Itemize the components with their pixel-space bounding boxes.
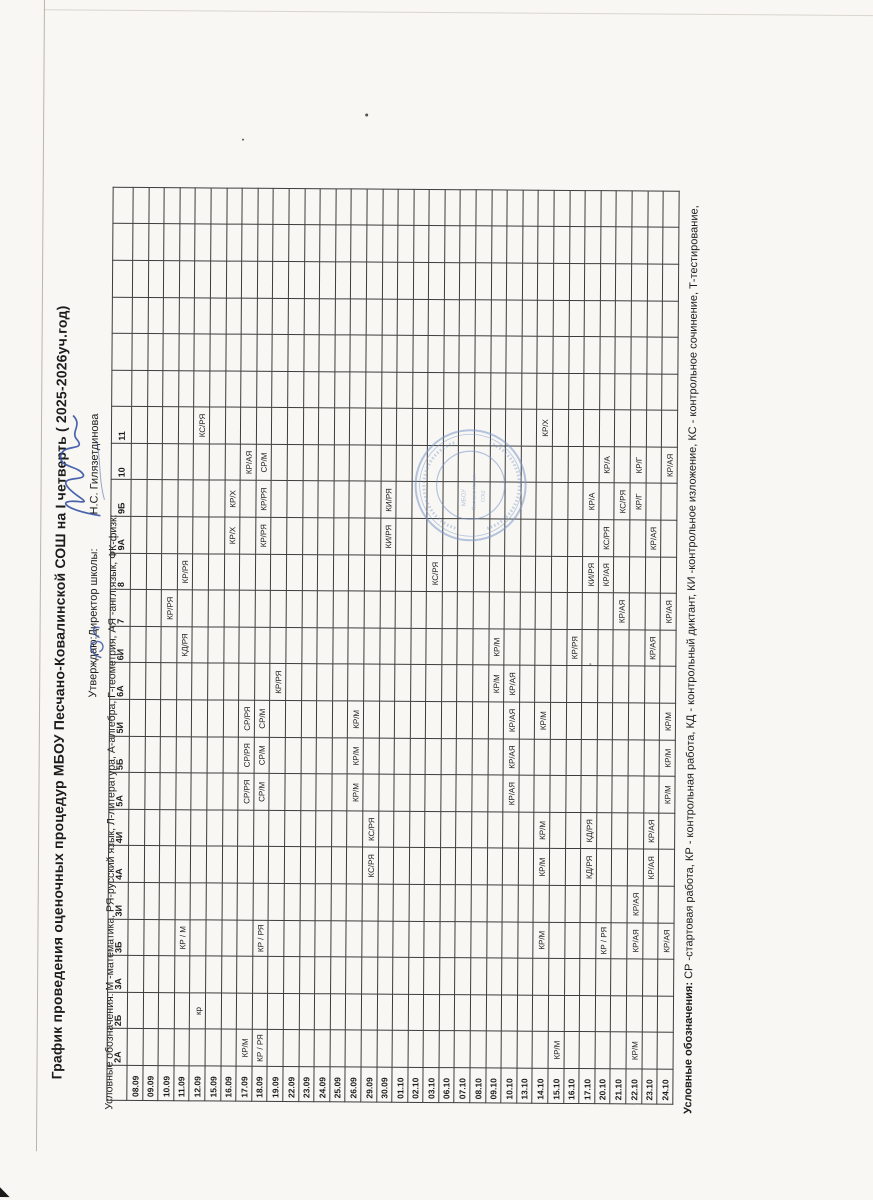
- schedule-cell: [395, 592, 411, 629]
- empty-cell: [521, 373, 537, 410]
- schedule-cell: [565, 812, 581, 849]
- schedule-cell: [489, 519, 505, 556]
- empty-cell: [553, 263, 569, 300]
- empty-cell: [226, 188, 242, 225]
- schedule-cell: [644, 666, 660, 703]
- schedule-cell: [423, 1031, 439, 1068]
- schedule-cell: [486, 1031, 502, 1068]
- schedule-cell: [302, 591, 318, 628]
- schedule-cell: [131, 407, 147, 444]
- empty-cell: [413, 335, 429, 372]
- schedule-cell: [551, 556, 567, 593]
- class-header-6А: 6А: [110, 663, 130, 700]
- schedule-cell: [255, 554, 271, 591]
- empty-cell: [397, 262, 413, 299]
- schedule-cell: [330, 1030, 346, 1067]
- schedule-cell: [642, 996, 658, 1033]
- schedule-cell: [566, 666, 582, 703]
- schedule-cell: [661, 520, 677, 557]
- schedule-cell: [362, 921, 378, 958]
- schedule-cell: [505, 483, 521, 520]
- dust-speck: [242, 139, 244, 141]
- schedule-cell: [147, 443, 163, 480]
- schedule-cell: [595, 995, 611, 1032]
- empty-cell: [273, 261, 289, 298]
- schedule-cell: [615, 447, 631, 484]
- empty-cell: [179, 261, 195, 298]
- scan-corner-mark: [0, 1183, 10, 1197]
- empty-cell: [335, 298, 351, 335]
- schedule-cell: [315, 847, 331, 884]
- empty-cell: [180, 187, 196, 224]
- empty-cell: [569, 263, 585, 300]
- schedule-cell: [502, 958, 518, 995]
- empty-cell: [179, 334, 195, 371]
- empty-cell: [273, 225, 289, 262]
- schedule-cell: [410, 665, 426, 702]
- empty-cell: [242, 188, 258, 225]
- schedule-cell: [471, 921, 487, 958]
- schedule-cell: [427, 482, 443, 519]
- schedule-cell: [316, 701, 332, 738]
- schedule-cell: [521, 483, 537, 520]
- schedule-cell: [301, 627, 317, 664]
- date-label: 24.10: [657, 1069, 673, 1104]
- schedule-cell: [424, 994, 440, 1031]
- schedule-cell: [580, 959, 596, 996]
- schedule-cell: [190, 919, 206, 956]
- empty-cell: [491, 263, 507, 300]
- schedule-cell: [334, 445, 350, 482]
- schedule-cell: [206, 956, 222, 993]
- schedule-cell: [443, 482, 459, 519]
- schedule-cell: [520, 592, 536, 629]
- schedule-cell: [426, 592, 442, 629]
- empty-cell: [398, 226, 414, 263]
- schedule-cell: [378, 774, 394, 811]
- schedule-cell: [565, 776, 581, 813]
- empty-cell: [289, 225, 305, 262]
- schedule-cell: [252, 993, 268, 1030]
- empty-cell: [413, 262, 429, 299]
- schedule-cell: [223, 700, 239, 737]
- schedule-cell: [579, 1032, 595, 1069]
- schedule-cell: [662, 410, 678, 447]
- empty-cell: [647, 264, 663, 301]
- schedule-cell: [144, 846, 160, 883]
- empty-cell: [366, 372, 382, 409]
- empty-cell: [506, 300, 522, 337]
- empty-cell: [412, 372, 428, 409]
- date-label: 12.09: [189, 1066, 205, 1101]
- empty-cell: [195, 224, 211, 261]
- schedule-cell: [566, 703, 582, 740]
- schedule-cell: [580, 995, 596, 1032]
- schedule-cell: [286, 627, 302, 664]
- schedule-cell: [393, 848, 409, 885]
- schedule-cell: [178, 480, 194, 517]
- schedule-cell: [597, 776, 613, 813]
- schedule-cell: [567, 483, 583, 520]
- schedule-cell: [456, 848, 472, 885]
- schedule-cell: [410, 775, 426, 812]
- schedule-cell: КР/М: [348, 701, 364, 738]
- schedule-cell: [456, 885, 472, 922]
- schedule-cell: КР/Х: [537, 410, 553, 447]
- schedule-cell: СР/М: [254, 774, 270, 811]
- empty-cell: [351, 262, 367, 299]
- schedule-cell: [486, 995, 502, 1032]
- schedule-cell: [287, 481, 303, 518]
- empty-cell: [225, 371, 241, 408]
- schedule-cell: [442, 519, 458, 556]
- schedule-cell: [285, 737, 301, 774]
- schedule-cell: КР/РЯ: [270, 664, 286, 701]
- schedule-cell: [303, 445, 319, 482]
- schedule-cell: [128, 919, 144, 956]
- schedule-cell: [488, 739, 504, 776]
- empty-cell: [366, 262, 382, 299]
- schedule-cell: [377, 957, 393, 994]
- schedule-cell: КИ/РЯ: [380, 482, 396, 519]
- empty-cell: [599, 373, 615, 410]
- schedule-cell: [440, 848, 456, 885]
- empty-cell: [210, 334, 226, 371]
- empty-cell: [226, 298, 242, 335]
- schedule-cell: [394, 774, 410, 811]
- schedule-cell: КР/М: [489, 629, 505, 666]
- schedule-cell: [162, 444, 178, 481]
- class-header-5И: 5И: [109, 699, 129, 736]
- schedule-cell: [424, 921, 440, 958]
- schedule-cell: [221, 920, 237, 957]
- class-header-4И: 4И: [109, 809, 129, 846]
- schedule-cell: [333, 555, 349, 592]
- empty-cell: [584, 373, 600, 410]
- schedule-cell: [536, 593, 552, 630]
- schedule-cell: [333, 591, 349, 628]
- empty-cell: [429, 226, 445, 263]
- schedule-cell: [394, 811, 410, 848]
- schedule-cell: [318, 518, 334, 555]
- schedule-cell: [361, 994, 377, 1031]
- empty-cell: [413, 299, 429, 336]
- date-label: 26.09: [345, 1067, 361, 1102]
- schedule-cell: [581, 776, 597, 813]
- schedule-cell: [660, 667, 676, 704]
- empty-cell: [616, 300, 632, 337]
- schedule-cell: КР/М: [659, 776, 675, 813]
- schedule-cell: [566, 739, 582, 776]
- date-label: 09.09: [142, 1065, 158, 1100]
- empty-cell: [149, 187, 165, 224]
- schedule-cell: [505, 519, 521, 556]
- schedule-cell: [396, 445, 412, 482]
- schedule-cell: [409, 848, 425, 885]
- schedule-cell: [582, 593, 598, 630]
- schedule-cell: [143, 1029, 159, 1066]
- empty-cell: [492, 190, 508, 227]
- schedule-cell: [268, 993, 284, 1030]
- schedule-cell: [613, 630, 629, 667]
- schedule-cell: [381, 445, 397, 482]
- empty-cell: [398, 189, 414, 226]
- schedule-cell: [455, 994, 471, 1031]
- schedule-cell: [487, 812, 503, 849]
- schedule-cell: КР/М: [347, 738, 363, 775]
- empty-cell: [538, 227, 554, 264]
- empty-cell: [257, 334, 273, 371]
- date-label: 15.10: [548, 1068, 564, 1103]
- schedule-cell: КИ/РЯ: [583, 556, 599, 593]
- schedule-cell: [349, 445, 365, 482]
- schedule-cell: [565, 849, 581, 886]
- empty-cell: [366, 335, 382, 372]
- schedule-cell: [520, 519, 536, 556]
- schedule-cell: КР/РЯ: [566, 629, 582, 666]
- date-label: 10.10: [501, 1068, 517, 1103]
- schedule-cell: [146, 553, 162, 590]
- schedule-cell: [159, 883, 175, 920]
- schedule-cell: [346, 884, 362, 921]
- schedule-cell: [627, 849, 643, 886]
- schedule-cell: [502, 995, 518, 1032]
- empty-cell: [273, 188, 289, 225]
- schedule-cell: [457, 702, 473, 739]
- empty-cell: [615, 337, 631, 374]
- empty-cell: [288, 371, 304, 408]
- schedule-cell: [239, 627, 255, 664]
- schedule-cell: [487, 848, 503, 885]
- schedule-cell: [253, 847, 269, 884]
- schedule-cell: [224, 590, 240, 627]
- schedule-cell: [299, 957, 315, 994]
- schedule-cell: [502, 922, 518, 959]
- empty-cell: [600, 264, 616, 301]
- class-header-8: 8: [110, 553, 130, 590]
- schedule-cell: [175, 846, 191, 883]
- schedule-cell: КР/АЯ: [504, 665, 520, 702]
- schedule-cell: [487, 775, 503, 812]
- schedule-cell: [299, 993, 315, 1030]
- schedule-cell: [347, 847, 363, 884]
- schedule-cell: [505, 446, 521, 483]
- schedule-cell: [503, 848, 519, 885]
- schedule-cell: КР/АЯ: [503, 739, 519, 776]
- schedule-cell: [661, 484, 677, 521]
- schedule-cell: [517, 995, 533, 1032]
- schedule-cell: [613, 703, 629, 740]
- schedule-cell: [377, 921, 393, 958]
- empty-cell: [570, 190, 586, 227]
- schedule-cell: [501, 1031, 517, 1068]
- schedule-cell: [533, 995, 549, 1032]
- schedule-cell: [658, 959, 674, 996]
- schedule-cell: [473, 629, 489, 666]
- schedule-cell: [611, 922, 627, 959]
- empty-cell: [646, 374, 662, 411]
- schedule-cell: [330, 994, 346, 1031]
- schedule-cell: [439, 958, 455, 995]
- schedule-cell: [396, 518, 412, 555]
- schedule-cell: [411, 555, 427, 592]
- schedule-cell: [506, 409, 522, 446]
- empty-cell: [538, 263, 554, 300]
- schedule-cell: [285, 774, 301, 811]
- date-label: 29.09: [361, 1067, 377, 1102]
- date-label: 20.10: [595, 1069, 611, 1104]
- schedule-cell: [364, 591, 380, 628]
- schedule-cell: [252, 956, 268, 993]
- empty-cell: [304, 262, 320, 299]
- schedule-cell: [222, 883, 238, 920]
- empty-cell: [210, 261, 226, 298]
- approval-prefix: Утверждаю:Директор школы:: [87, 548, 100, 697]
- date-label: 16.10: [563, 1068, 579, 1103]
- schedule-cell: [458, 519, 474, 556]
- schedule-cell: [209, 407, 225, 444]
- empty-cell: [226, 224, 242, 261]
- empty-cell: [147, 370, 163, 407]
- scanned-schedule-page: График проведения оценочных процедур МБО…: [0, 0, 873, 1200]
- empty-cell: [272, 298, 288, 335]
- schedule-cell: [659, 813, 675, 850]
- schedule-cell: [269, 810, 285, 847]
- schedule-cell: [646, 447, 662, 484]
- empty-cell: [288, 261, 304, 298]
- empty-cell: [490, 373, 506, 410]
- empty-cell: [351, 225, 367, 262]
- schedule-cell: КИ/РЯ: [380, 518, 396, 555]
- empty-cell: [615, 373, 631, 410]
- schedule-cell: [486, 922, 502, 959]
- schedule-cell: [332, 701, 348, 738]
- empty-cell: [382, 262, 398, 299]
- schedule-cell: КР/АЯ: [504, 702, 520, 739]
- date-label: 11.09: [174, 1066, 190, 1101]
- schedule-cell: [487, 885, 503, 922]
- empty-cell: [647, 227, 663, 264]
- schedule-cell: [472, 812, 488, 849]
- schedule-cell: [271, 444, 287, 481]
- schedule-cell: [440, 921, 456, 958]
- schedule-cell: [504, 629, 520, 666]
- schedule-cell: [174, 956, 190, 993]
- empty-cell: [553, 300, 569, 337]
- empty-cell: [382, 299, 398, 336]
- schedule-cell: [505, 556, 521, 593]
- empty-cell: [523, 190, 539, 227]
- schedule-cell: [502, 885, 518, 922]
- schedule-cell: [175, 883, 191, 920]
- empty-cell: [631, 374, 647, 411]
- schedule-cell: КР / РЯ: [252, 1030, 268, 1067]
- empty-cell: [257, 225, 273, 262]
- schedule-cell: [490, 446, 506, 483]
- schedule-cell: [534, 775, 550, 812]
- schedule-cell: [428, 409, 444, 446]
- empty-cell: [663, 191, 679, 228]
- schedule-cell: [361, 1030, 377, 1067]
- schedule-cell: [582, 703, 598, 740]
- empty-cell: [164, 224, 180, 261]
- empty-cell: [304, 298, 320, 335]
- date-label: 02.10: [407, 1067, 423, 1102]
- schedule-cell: [583, 446, 599, 483]
- class-header-2Б: 2Б: [107, 992, 127, 1029]
- schedule-cell: [456, 812, 472, 849]
- schedule-cell: [551, 629, 567, 666]
- schedule-cell: [193, 480, 209, 517]
- schedule-cell: [599, 410, 615, 447]
- empty-cell: [554, 227, 570, 264]
- empty-cell: [600, 227, 616, 264]
- schedule-cell: [473, 665, 489, 702]
- empty-cell: [647, 301, 663, 338]
- schedule-cell: [286, 591, 302, 628]
- empty-cell: [194, 371, 210, 408]
- empty-cell: [459, 372, 475, 409]
- schedule-cell: [441, 738, 457, 775]
- empty-cell: [568, 373, 584, 410]
- schedule-cell: [443, 445, 459, 482]
- schedule-cell: [536, 483, 552, 520]
- schedule-cell: [193, 517, 209, 554]
- schedule-cell: [629, 557, 645, 594]
- schedule-cell: [225, 407, 241, 444]
- schedule-cell: [410, 738, 426, 775]
- schedule-cell: [424, 958, 440, 995]
- schedule-cell: [549, 849, 565, 886]
- empty-cell: [662, 374, 678, 411]
- schedule-cell: [455, 921, 471, 958]
- schedule-cell: КР/РЯ: [161, 590, 177, 627]
- schedule-cell: [552, 410, 568, 447]
- schedule-cell: КР/РЯ: [177, 553, 193, 590]
- empty-cell: [211, 188, 227, 225]
- schedule-cell: [316, 811, 332, 848]
- class-header-3Б: 3Б: [108, 919, 128, 956]
- schedule-cell: [330, 957, 346, 994]
- schedule-cell: КР/АЯ: [661, 447, 677, 484]
- schedule-cell: [208, 554, 224, 591]
- empty-cell: [195, 297, 211, 334]
- schedule-cell: КС/РЯ: [614, 483, 630, 520]
- empty-cell: [569, 300, 585, 337]
- schedule-cell: [221, 993, 237, 1030]
- schedule-cell: [533, 885, 549, 922]
- schedule-cell: [552, 446, 568, 483]
- date-label: 21.10: [610, 1069, 626, 1104]
- schedule-cell: [163, 407, 179, 444]
- schedule-cell: [457, 738, 473, 775]
- date-label: 22.09: [283, 1066, 299, 1101]
- schedule-cell: КР / М: [175, 919, 191, 956]
- empty-cell: [194, 334, 210, 371]
- schedule-cell: [267, 1030, 283, 1067]
- schedule-cell: [488, 702, 504, 739]
- schedule-cell: [224, 554, 240, 591]
- schedule-cell: [316, 737, 332, 774]
- empty-cell: [350, 335, 366, 372]
- schedule-cell: [411, 592, 427, 629]
- schedule-cell: [628, 740, 644, 777]
- schedule-cell: [362, 884, 378, 921]
- schedule-cell: [643, 886, 659, 923]
- empty-header-cell: [113, 187, 133, 224]
- empty-cell: [538, 190, 554, 227]
- schedule-cell: [302, 481, 318, 518]
